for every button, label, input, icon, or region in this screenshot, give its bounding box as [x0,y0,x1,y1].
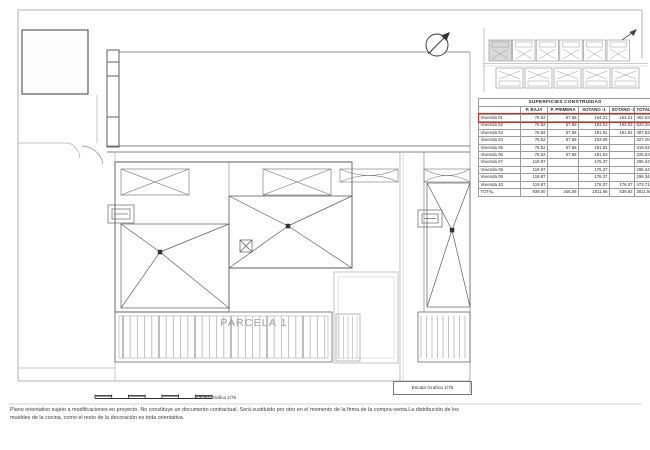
cell-total: 296.34 [635,166,650,173]
table-row: TOTAL 939.00 346.08 1811.66 539.83 3811.… [479,189,650,196]
cell-p-baja: 119.97 [521,159,548,166]
cell-p-primera [548,166,579,173]
scale-box: Escala Grafica 1/75 [393,381,472,395]
curved-porch [340,169,398,182]
table-row: Vivienda 07 119.97 176.37 296.34 [479,159,650,166]
cell-sotano-2: 164.21 [610,114,635,121]
cell-sotano-2 [610,144,635,151]
cell-sotano-1: 176.37 [579,166,610,173]
row-label: Vivienda 07 [479,159,521,166]
cell-p-baja: 76.52 [521,129,548,136]
cell-p-primera: 57.68 [548,122,579,129]
cell-sotano-2: 193.03 [610,122,635,129]
cell-sotano-2 [610,159,635,166]
row-label: Vivienda 04 [479,137,521,144]
table-row: Vivienda 08 119.97 176.37 296.34 [479,166,650,173]
cell-sotano-1: 191.84 [579,144,610,151]
table-row: Vivienda 05 76.52 57.68 191.84 318.04 [479,144,650,151]
cell-p-baja: 76.52 [521,144,548,151]
cell-p-baja: 76.52 [521,137,548,144]
table-row: Vivienda 06 76.52 57.68 191.63 325.63 [479,151,650,158]
scale-box-label: Escala Grafica 1/75 [412,386,454,391]
row-label: Vivienda 03 [479,129,521,136]
table-header-row: P. BAJA P. PRIMERA SOTANO -1 SOTANO -2 T… [479,107,650,115]
table-row: Vivienda 04 76.52 57.68 193.06 327.26 [479,137,650,144]
col-header [479,107,521,115]
cell-sotano-1: 1811.66 [579,189,610,196]
cell-sotano-2 [610,174,635,181]
table-row: Vivienda 03 76.52 57.68 191.81 191.81 48… [479,129,650,136]
row-label: Vivienda 10 [479,181,521,188]
ac-unit-icon [108,205,134,223]
cell-total: 296.34 [635,174,650,181]
inset-north-arrow-icon [622,29,637,40]
cell-total: 296.34 [635,159,650,166]
cell-p-primera: 57.68 [548,114,579,121]
areas-table: SUPERFICIES CONSTRUIDAS P. BAJA P. PRIME… [478,98,650,197]
chimney [240,240,252,252]
ac-unit-icon [418,210,442,227]
cell-sotano-1: 176.37 [579,174,610,181]
cell-p-baja: 76.52 [521,122,548,129]
cell-total: 318.04 [635,144,650,151]
cell-p-baja: 119.97 [521,181,548,188]
cell-p-primera: 57.68 [548,151,579,158]
disclaimer-line-2: muebles de la cocina, como el resto de l… [10,415,184,421]
cell-p-primera: 57.68 [548,129,579,136]
row-label: TOTAL [479,189,521,196]
pool [334,272,398,363]
cell-sotano-1: 193.03 [579,122,610,129]
parcel-label: PARCELA 1 [198,317,310,329]
cell-p-baja: 119.97 [521,166,548,173]
row-label: Vivienda 08 [479,166,521,173]
row-label: Vivienda 06 [479,151,521,158]
cell-p-baja: 939.00 [521,189,548,196]
pilaster-wall [107,50,119,147]
cell-total: 3811.56 [635,189,650,196]
row-label: Vivienda 02 [479,122,521,129]
cell-p-primera: 346.08 [548,189,579,196]
cell-total: 487.82 [635,129,650,136]
cell-sotano-2: 191.81 [610,129,635,136]
cell-p-primera [548,174,579,181]
cell-sotano-1: 191.63 [579,151,610,158]
col-header: P. PRIMERA [548,107,579,115]
neighbor-house [418,152,470,362]
col-header: TOTAL [635,107,650,115]
scale-bar [95,395,212,399]
table-title-row: SUPERFICIES CONSTRUIDAS [479,99,650,107]
cell-sotano-1: 164.21 [579,114,610,121]
plot-boundaries [18,52,470,381]
cell-sotano-2 [610,151,635,158]
cell-p-primera: 57.68 [548,137,579,144]
cell-total: 462.62 [635,114,650,121]
cell-p-primera [548,159,579,166]
row-label: Vivienda 09 [479,174,521,181]
cell-p-baja: 119.97 [521,174,548,181]
col-header: SOTANO -1 [579,107,610,115]
cell-p-primera [548,181,579,188]
row-label: Vivienda 01 [479,114,521,121]
site-plan-drawing [0,0,650,450]
cell-sotano-2 [610,137,635,144]
table-row: Vivienda 09 119.97 176.37 296.34 [479,174,650,181]
site-inset [484,28,648,92]
cell-sotano-1: 191.81 [579,129,610,136]
cell-p-primera: 57.68 [548,144,579,151]
cell-sotano-1: 176.37 [579,159,610,166]
cell-total: 325.63 [635,151,650,158]
cell-total: 473.71 [635,181,650,188]
table-title: SUPERFICIES CONSTRUIDAS [479,99,650,107]
cell-p-baja: 76.52 [521,114,548,121]
col-header: SOTANO -2 [610,107,635,115]
table-row: Vivienda 01 76.52 57.68 164.21 164.21 46… [479,114,650,121]
cell-sotano-1: 193.06 [579,137,610,144]
table-row: Vivienda 10 119.97 176.37 176.37 473.71 [479,181,650,188]
drawing-sheet: PARCELA 1 Escala Grafica 1/75 Escala Gra… [0,0,650,450]
scale-bar-label: Escala Grafica 1/75 [196,395,236,400]
house-roof [108,162,398,312]
cell-sotano-2: 539.83 [610,189,635,196]
cell-total: 327.26 [635,137,650,144]
cell-total: 520.26 [635,122,650,129]
shed [22,30,88,94]
col-header: P. BAJA [521,107,548,115]
disclaimer-line-1: Plano orientativo sujeto a modificacione… [10,407,459,413]
compass-icon [426,32,450,56]
table-row: Vivienda 02 76.52 57.68 193.03 193.03 52… [479,122,650,129]
cell-sotano-2: 176.37 [610,181,635,188]
cell-sotano-2 [610,166,635,173]
cell-sotano-1: 176.37 [579,181,610,188]
row-label: Vivienda 05 [479,144,521,151]
cell-p-baja: 76.52 [521,151,548,158]
